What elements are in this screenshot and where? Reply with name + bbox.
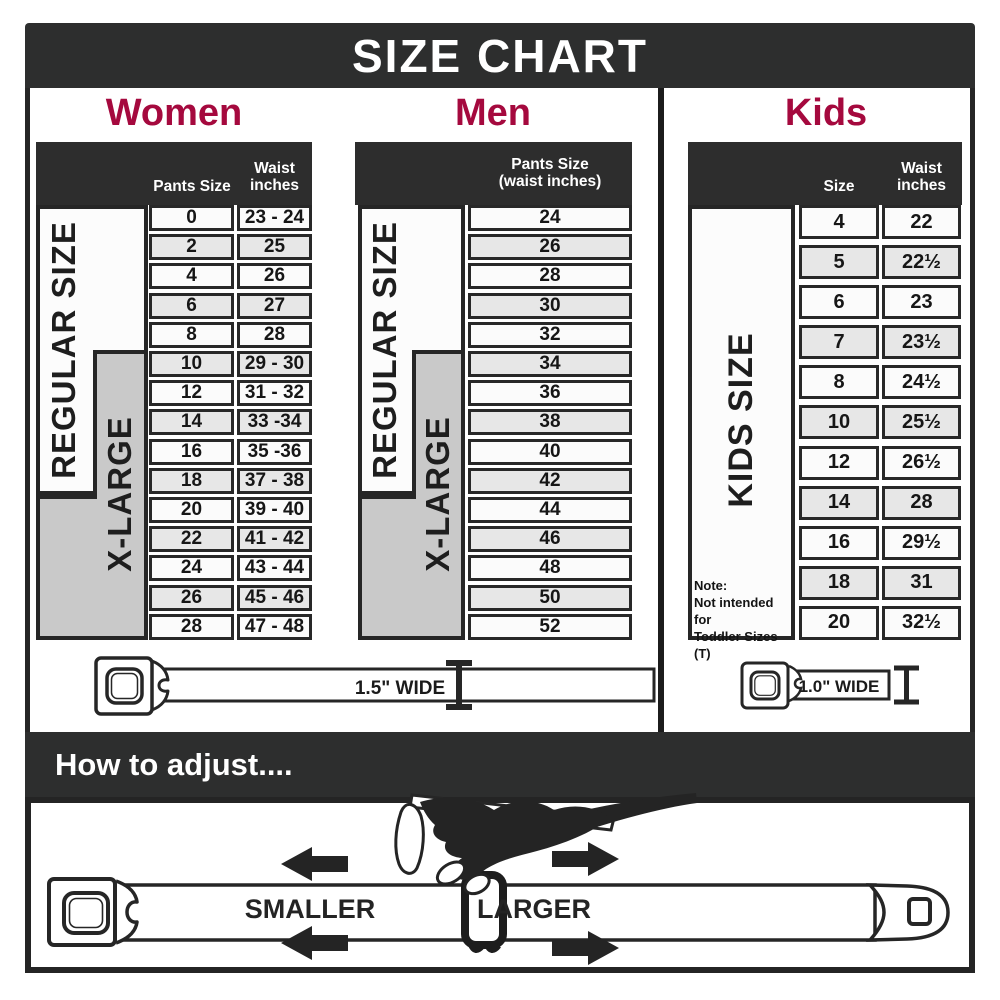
women-pants-size-header: Pants Size — [149, 178, 235, 195]
table-cell: 30 — [468, 293, 632, 319]
size-chart-page: SIZE CHART Women Men Kids Pants Size Wai… — [0, 0, 1000, 1000]
table-cell: 41 - 42 — [237, 526, 312, 552]
table-cell: 26 — [468, 234, 632, 260]
table-cell: 0 — [149, 205, 234, 231]
how-to-adjust-bar: How to adjust.... — [25, 732, 975, 797]
table-cell: 28 — [149, 614, 234, 640]
table-cell: 16 — [799, 526, 879, 560]
table-cell: 44 — [468, 497, 632, 523]
smaller-label: SMALLER — [240, 894, 380, 925]
women-heading: Women — [94, 92, 254, 135]
table-cell: 14 — [149, 409, 234, 435]
table-cell: 26 — [149, 585, 234, 611]
kids-heading: Kids — [746, 92, 906, 135]
page-title: SIZE CHART — [352, 29, 648, 83]
table-cell: 24 — [468, 205, 632, 231]
table-cell: 24½ — [882, 365, 961, 399]
kids-size-column: 4 5 6 7 8 10 12 14 16 18 20 — [799, 205, 879, 640]
table-cell: 52 — [468, 614, 632, 640]
table-cell: 12 — [799, 446, 879, 480]
table-cell: 46 — [468, 526, 632, 552]
table-cell: 40 — [468, 439, 632, 465]
how-to-adjust-panel — [25, 797, 975, 973]
table-cell: 38 — [468, 409, 632, 435]
kids-table-header: Size Waist inches — [688, 142, 962, 205]
table-cell: 20 — [799, 606, 879, 640]
table-cell: 33 -34 — [237, 409, 312, 435]
women-regular-size-label: REGULAR SIZE — [44, 200, 84, 500]
women-table-header: Pants Size Waist inches — [36, 142, 312, 205]
men-regular-size-label: REGULAR SIZE — [365, 200, 405, 500]
table-cell: 36 — [468, 380, 632, 406]
table-cell: 34 — [468, 351, 632, 377]
women-waist-column: 23 - 24 25 26 27 28 29 - 30 31 - 32 33 -… — [237, 205, 312, 640]
adult-belt-width-label: 1.5" WIDE — [340, 678, 460, 700]
table-cell: 50 — [468, 585, 632, 611]
table-cell: 23½ — [882, 325, 961, 359]
table-cell: 22½ — [882, 245, 961, 279]
table-cell: 29½ — [882, 526, 961, 560]
larger-label: LARGER — [464, 894, 604, 925]
table-cell: 2 — [149, 234, 234, 260]
table-cell: 4 — [799, 205, 879, 239]
men-xlarge-label: X-LARGE — [418, 344, 458, 644]
table-cell: 43 - 44 — [237, 555, 312, 581]
kids-waist-header: Waist inches — [882, 160, 961, 194]
title-bar: SIZE CHART — [25, 23, 975, 88]
kids-size-label: KIDS SIZE — [721, 270, 761, 570]
table-cell: 29 - 30 — [237, 351, 312, 377]
table-cell: 8 — [149, 322, 234, 348]
table-cell: 8 — [799, 365, 879, 399]
table-cell: 23 — [882, 285, 961, 319]
kids-size-header: Size — [799, 178, 879, 195]
table-cell: 5 — [799, 245, 879, 279]
table-cell: 31 - 32 — [237, 380, 312, 406]
table-cell: 25½ — [882, 405, 961, 439]
table-cell: 37 - 38 — [237, 468, 312, 494]
women-xlarge-label: X-LARGE — [100, 344, 140, 644]
table-cell: 16 — [149, 439, 234, 465]
table-cell: 6 — [799, 285, 879, 319]
table-cell: 23 - 24 — [237, 205, 312, 231]
table-cell: 26½ — [882, 446, 961, 480]
table-cell: 26 — [237, 263, 312, 289]
table-cell: 35 -36 — [237, 439, 312, 465]
table-cell: 27 — [237, 293, 312, 319]
table-cell: 24 — [149, 555, 234, 581]
men-heading: Men — [413, 92, 573, 135]
table-cell: 28 — [468, 263, 632, 289]
table-cell: 42 — [468, 468, 632, 494]
table-cell: 20 — [149, 497, 234, 523]
table-cell: 32 — [468, 322, 632, 348]
table-cell: 4 — [149, 263, 234, 289]
table-cell: 10 — [799, 405, 879, 439]
men-pants-size-column: 24 26 28 30 32 34 36 38 40 42 44 46 48 5… — [468, 205, 632, 640]
table-cell: 25 — [237, 234, 312, 260]
panel-divider — [658, 88, 664, 732]
table-cell: 48 — [468, 555, 632, 581]
table-cell: 28 — [882, 486, 961, 520]
table-cell: 39 - 40 — [237, 497, 312, 523]
table-cell: 32½ — [882, 606, 961, 640]
table-cell: 6 — [149, 293, 234, 319]
table-cell: 10 — [149, 351, 234, 377]
table-cell: 45 - 46 — [237, 585, 312, 611]
women-pants-size-column: 0 2 4 6 8 10 12 14 16 18 20 22 24 26 28 — [149, 205, 234, 640]
women-waist-header: Waist inches — [237, 160, 312, 194]
table-cell: 28 — [237, 322, 312, 348]
table-cell: 18 — [799, 566, 879, 600]
kids-note: Note: Not intended for Toddler Sizes (T) — [694, 577, 794, 662]
table-cell: 12 — [149, 380, 234, 406]
table-cell: 7 — [799, 325, 879, 359]
table-cell: 31 — [882, 566, 961, 600]
men-pants-size-header: Pants Size (waist inches) — [468, 156, 632, 190]
table-cell: 22 — [149, 526, 234, 552]
table-cell: 18 — [149, 468, 234, 494]
table-cell: 47 - 48 — [237, 614, 312, 640]
men-table-header: Pants Size (waist inches) — [355, 142, 632, 205]
table-cell: 22 — [882, 205, 961, 239]
table-cell: 14 — [799, 486, 879, 520]
how-to-adjust-heading: How to adjust.... — [25, 747, 293, 783]
kids-waist-column: 22 22½ 23 23½ 24½ 25½ 26½ 28 29½ 31 32½ — [882, 205, 961, 640]
kids-belt-width-label: 1.0" WIDE — [789, 677, 889, 697]
